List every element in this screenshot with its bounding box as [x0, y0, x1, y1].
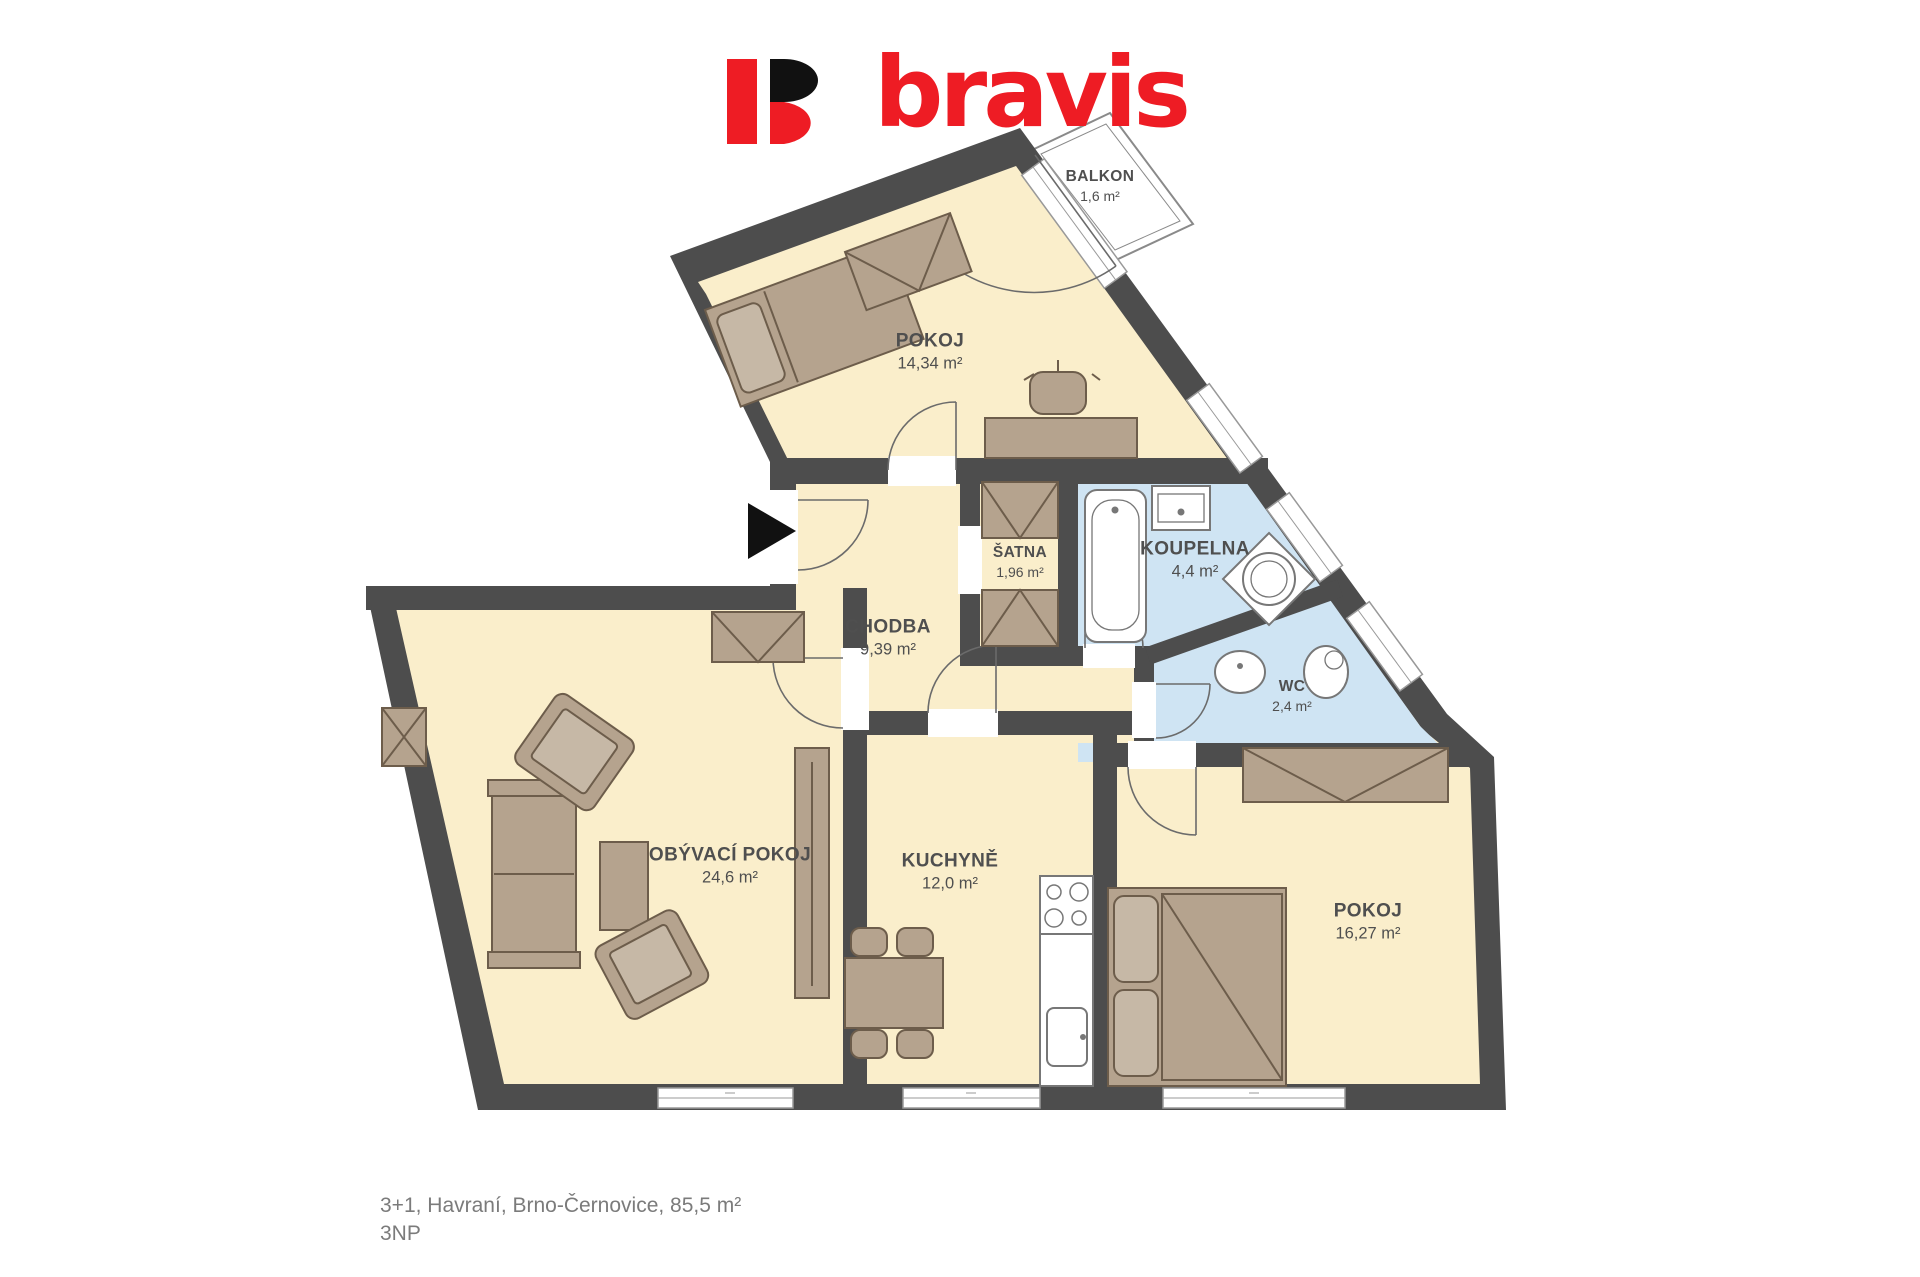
caption-line-2: 3NP [380, 1220, 741, 1248]
chair [897, 928, 933, 956]
coffee-table [600, 842, 648, 930]
room-label-chodba: CHODBA9,39 m² [845, 617, 931, 660]
windows-bottom [658, 1088, 1345, 1108]
room-label-wc: WC2,4 m² [1272, 678, 1312, 714]
wardrobe [712, 612, 804, 662]
chair [851, 1030, 887, 1058]
dining-table [845, 958, 943, 1028]
room-label-pokoj-2: POKOJ16,27 m² [1334, 901, 1403, 944]
chair [851, 928, 887, 956]
room-label-obyvaci-pokoj: OBÝVACÍ POKOJ24,6 m² [649, 845, 811, 888]
floor-plan-drawing [0, 0, 1920, 1277]
caption-line-1: 3+1, Havraní, Brno-Černovice, 85,5 m² [380, 1192, 741, 1220]
wc-sink [1215, 651, 1265, 693]
room-label-satna: ŠATNA1,96 m² [993, 544, 1047, 580]
bravis-logo-icon [727, 59, 818, 144]
bravis-logo-text: bravis [874, 36, 1187, 149]
desk [985, 418, 1137, 458]
chair [897, 1030, 933, 1058]
desk-chair [1030, 372, 1086, 414]
room-label-koupelna: KOUPELNA4,4 m² [1140, 539, 1250, 582]
room-label-balkon: BALKON1,6 m² [1066, 168, 1135, 204]
wardrobe [1243, 748, 1448, 802]
listing-caption: 3+1, Havraní, Brno-Černovice, 85,5 m² 3N… [380, 1192, 741, 1247]
floor-plan-page: bravis POKOJ14,34 m² BALKON1,6 m² ŠATNA1… [0, 0, 1920, 1277]
room-label-pokoj-1: POKOJ14,34 m² [896, 331, 965, 374]
room-label-kuchyne: KUCHYNĚ12,0 m² [902, 851, 999, 894]
